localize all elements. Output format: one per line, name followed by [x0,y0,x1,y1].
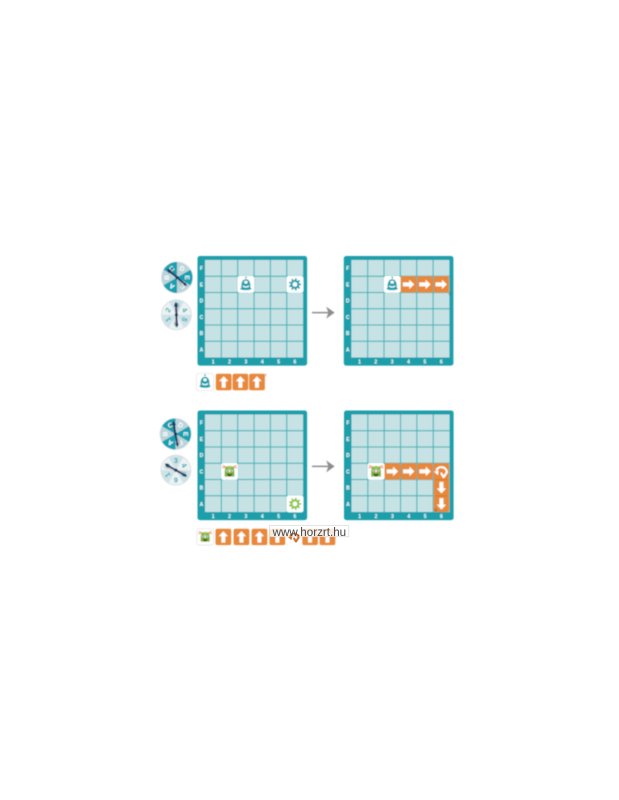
svg-text:www.horzrt.hu: www.horzrt.hu [272,525,347,539]
svg-text:E: E [181,432,188,437]
svg-text:®: ® [434,508,437,513]
svg-text:3: 3 [174,456,178,465]
svg-text:E: E [183,275,190,280]
svg-text:B: B [163,431,170,436]
svg-text:B: B [164,275,171,280]
svg-text:®: ® [264,373,267,378]
svg-text:®: ® [449,292,452,297]
svg-text:6: 6 [174,475,178,484]
